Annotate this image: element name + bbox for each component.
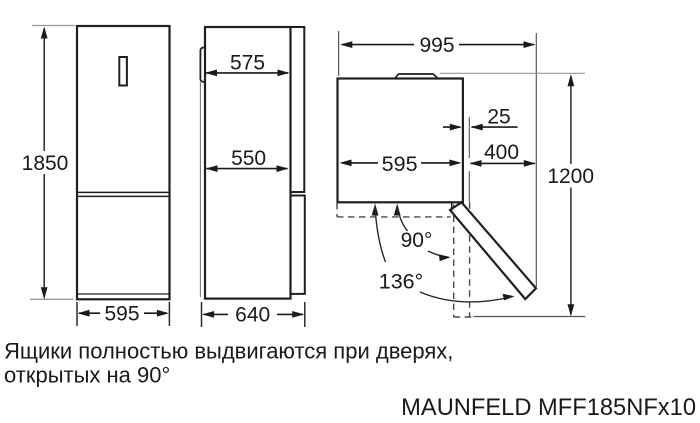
svg-text:575: 575 xyxy=(230,52,265,75)
svg-text:MAUNFELD MFF185NFx10: MAUNFELD MFF185NFx10 xyxy=(401,395,696,421)
svg-text:1850: 1850 xyxy=(22,152,69,175)
svg-text:90°: 90° xyxy=(401,229,433,252)
svg-text:открытых на 90°: открытых на 90° xyxy=(4,363,170,388)
svg-text:595: 595 xyxy=(382,152,418,176)
svg-text:1200: 1200 xyxy=(547,165,594,188)
svg-text:136°: 136° xyxy=(379,270,423,294)
svg-text:995: 995 xyxy=(419,34,454,57)
svg-text:Ящики полностью выдвигаются пр: Ящики полностью выдвигаются при дверях, xyxy=(4,339,453,364)
svg-text:25: 25 xyxy=(487,106,510,129)
svg-text:595: 595 xyxy=(104,303,139,326)
svg-text:400: 400 xyxy=(484,141,519,164)
svg-text:640: 640 xyxy=(235,304,270,327)
svg-text:550: 550 xyxy=(231,147,266,170)
